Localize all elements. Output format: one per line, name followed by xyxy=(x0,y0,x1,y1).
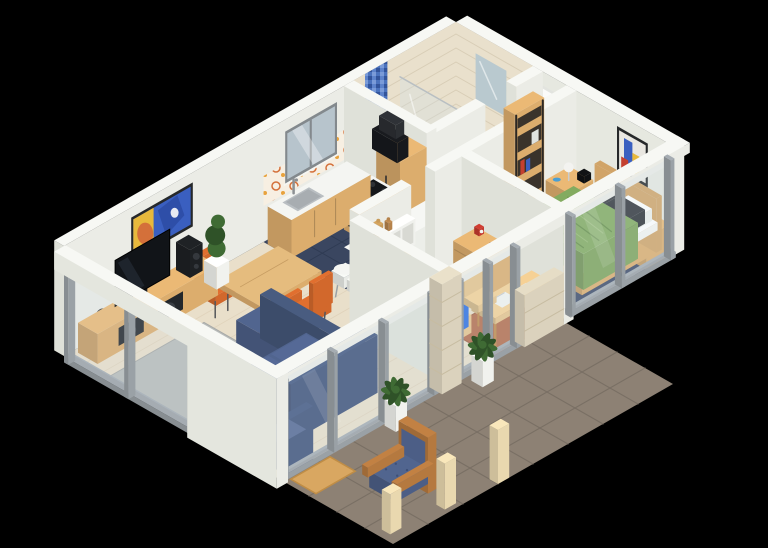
floorplan-render: Isometric 3D rendering of a furnished ap… xyxy=(0,0,768,548)
stone-pillar xyxy=(429,266,461,394)
floorplan-canvas xyxy=(0,0,768,548)
speaker[interactable] xyxy=(176,235,203,278)
